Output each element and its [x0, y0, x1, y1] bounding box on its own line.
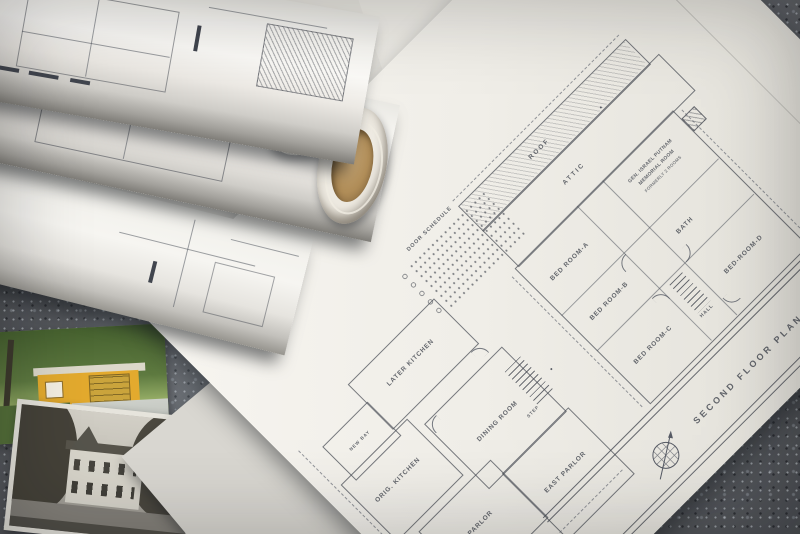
ink-speck	[550, 368, 553, 371]
blueprints-photo-scene: ROOM C 9'-0" CEILING KEYNOTES ROOF ATTIC	[0, 0, 800, 534]
wall-segment	[148, 261, 157, 283]
plan-fragment	[16, 0, 180, 93]
plan-line	[173, 220, 196, 308]
roof-hatching	[256, 23, 354, 101]
north-arrow-icon	[633, 423, 698, 488]
plan-line	[231, 239, 299, 257]
wall-segment	[70, 78, 90, 85]
wall-segment	[193, 25, 201, 51]
house-window	[46, 382, 63, 398]
plan-line	[119, 232, 255, 267]
bw-gable	[70, 424, 104, 451]
plan-fragment	[202, 262, 275, 327]
garage-door	[90, 375, 130, 403]
